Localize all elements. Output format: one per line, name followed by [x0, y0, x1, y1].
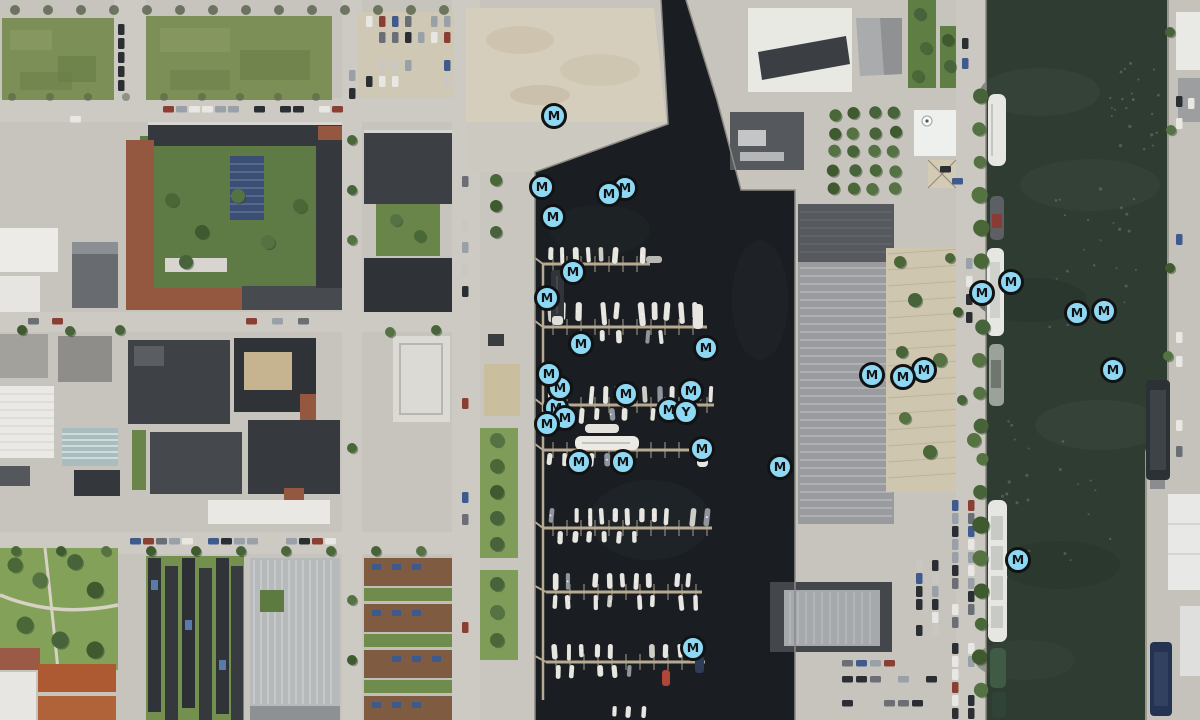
marker-glyph: M [575, 338, 587, 351]
marker-glyph: M [1071, 307, 1083, 320]
mooring-marker[interactable]: M [529, 174, 555, 200]
marker-glyph: M [918, 364, 930, 377]
mooring-marker[interactable]: M [566, 449, 592, 475]
marker-glyph: M [547, 211, 559, 224]
marker-glyph: Y [681, 406, 690, 419]
mooring-marker[interactable]: M [1091, 298, 1117, 324]
mooring-marker[interactable]: M [1100, 357, 1126, 383]
marker-glyph: M [1098, 305, 1110, 318]
marker-glyph: M [696, 443, 708, 456]
marker-glyph: M [700, 342, 712, 355]
mooring-marker[interactable]: M [541, 103, 567, 129]
mooring-marker[interactable]: M [890, 364, 916, 390]
mooring-marker[interactable]: M [1064, 300, 1090, 326]
mooring-marker[interactable]: M [540, 204, 566, 230]
marker-glyph: M [685, 385, 697, 398]
mooring-marker[interactable]: M [969, 280, 995, 306]
marker-glyph: M [976, 287, 988, 300]
marker-glyph: M [559, 412, 571, 425]
mooring-marker[interactable]: M [610, 449, 636, 475]
mooring-marker[interactable]: M [693, 335, 719, 361]
marker-glyph: M [536, 181, 548, 194]
marker-glyph: M [1107, 364, 1119, 377]
mooring-marker[interactable]: M [680, 635, 706, 661]
mooring-marker[interactable]: M [568, 331, 594, 357]
marker-glyph: M [573, 456, 585, 469]
marker-glyph: M [548, 110, 560, 123]
marker-glyph: M [687, 642, 699, 655]
marker-glyph: M [1012, 554, 1024, 567]
marker-glyph: M [541, 418, 553, 431]
marker-glyph: M [866, 369, 878, 382]
mooring-marker[interactable]: M [767, 454, 793, 480]
mooring-marker[interactable]: M [534, 285, 560, 311]
marker-glyph: M [620, 388, 632, 401]
mooring-marker[interactable]: M [534, 411, 560, 437]
mooring-marker[interactable]: M [613, 381, 639, 407]
mooring-marker[interactable]: M [859, 362, 885, 388]
marker-glyph: M [897, 371, 909, 384]
mooring-marker[interactable]: M [536, 361, 562, 387]
marker-glyph: M [603, 188, 615, 201]
marker-glyph: M [1005, 276, 1017, 289]
marker-glyph: M [543, 368, 555, 381]
marker-glyph: M [617, 456, 629, 469]
mooring-marker[interactable]: M [689, 436, 715, 462]
mooring-marker[interactable]: M [596, 181, 622, 207]
mooring-marker[interactable]: M [998, 269, 1024, 295]
marker-layer: MMMMMMMMMMMMMMMMMYMMMMMMMMMMMMMM [0, 0, 1200, 720]
mooring-marker[interactable]: M [1005, 547, 1031, 573]
marker-glyph: M [541, 292, 553, 305]
satellite-map[interactable]: MMMMMMMMMMMMMMMMMYMMMMMMMMMMMMMM [0, 0, 1200, 720]
marker-glyph: M [567, 266, 579, 279]
mooring-marker[interactable]: Y [673, 399, 699, 425]
marker-glyph: M [774, 461, 786, 474]
mooring-marker[interactable]: M [560, 259, 586, 285]
